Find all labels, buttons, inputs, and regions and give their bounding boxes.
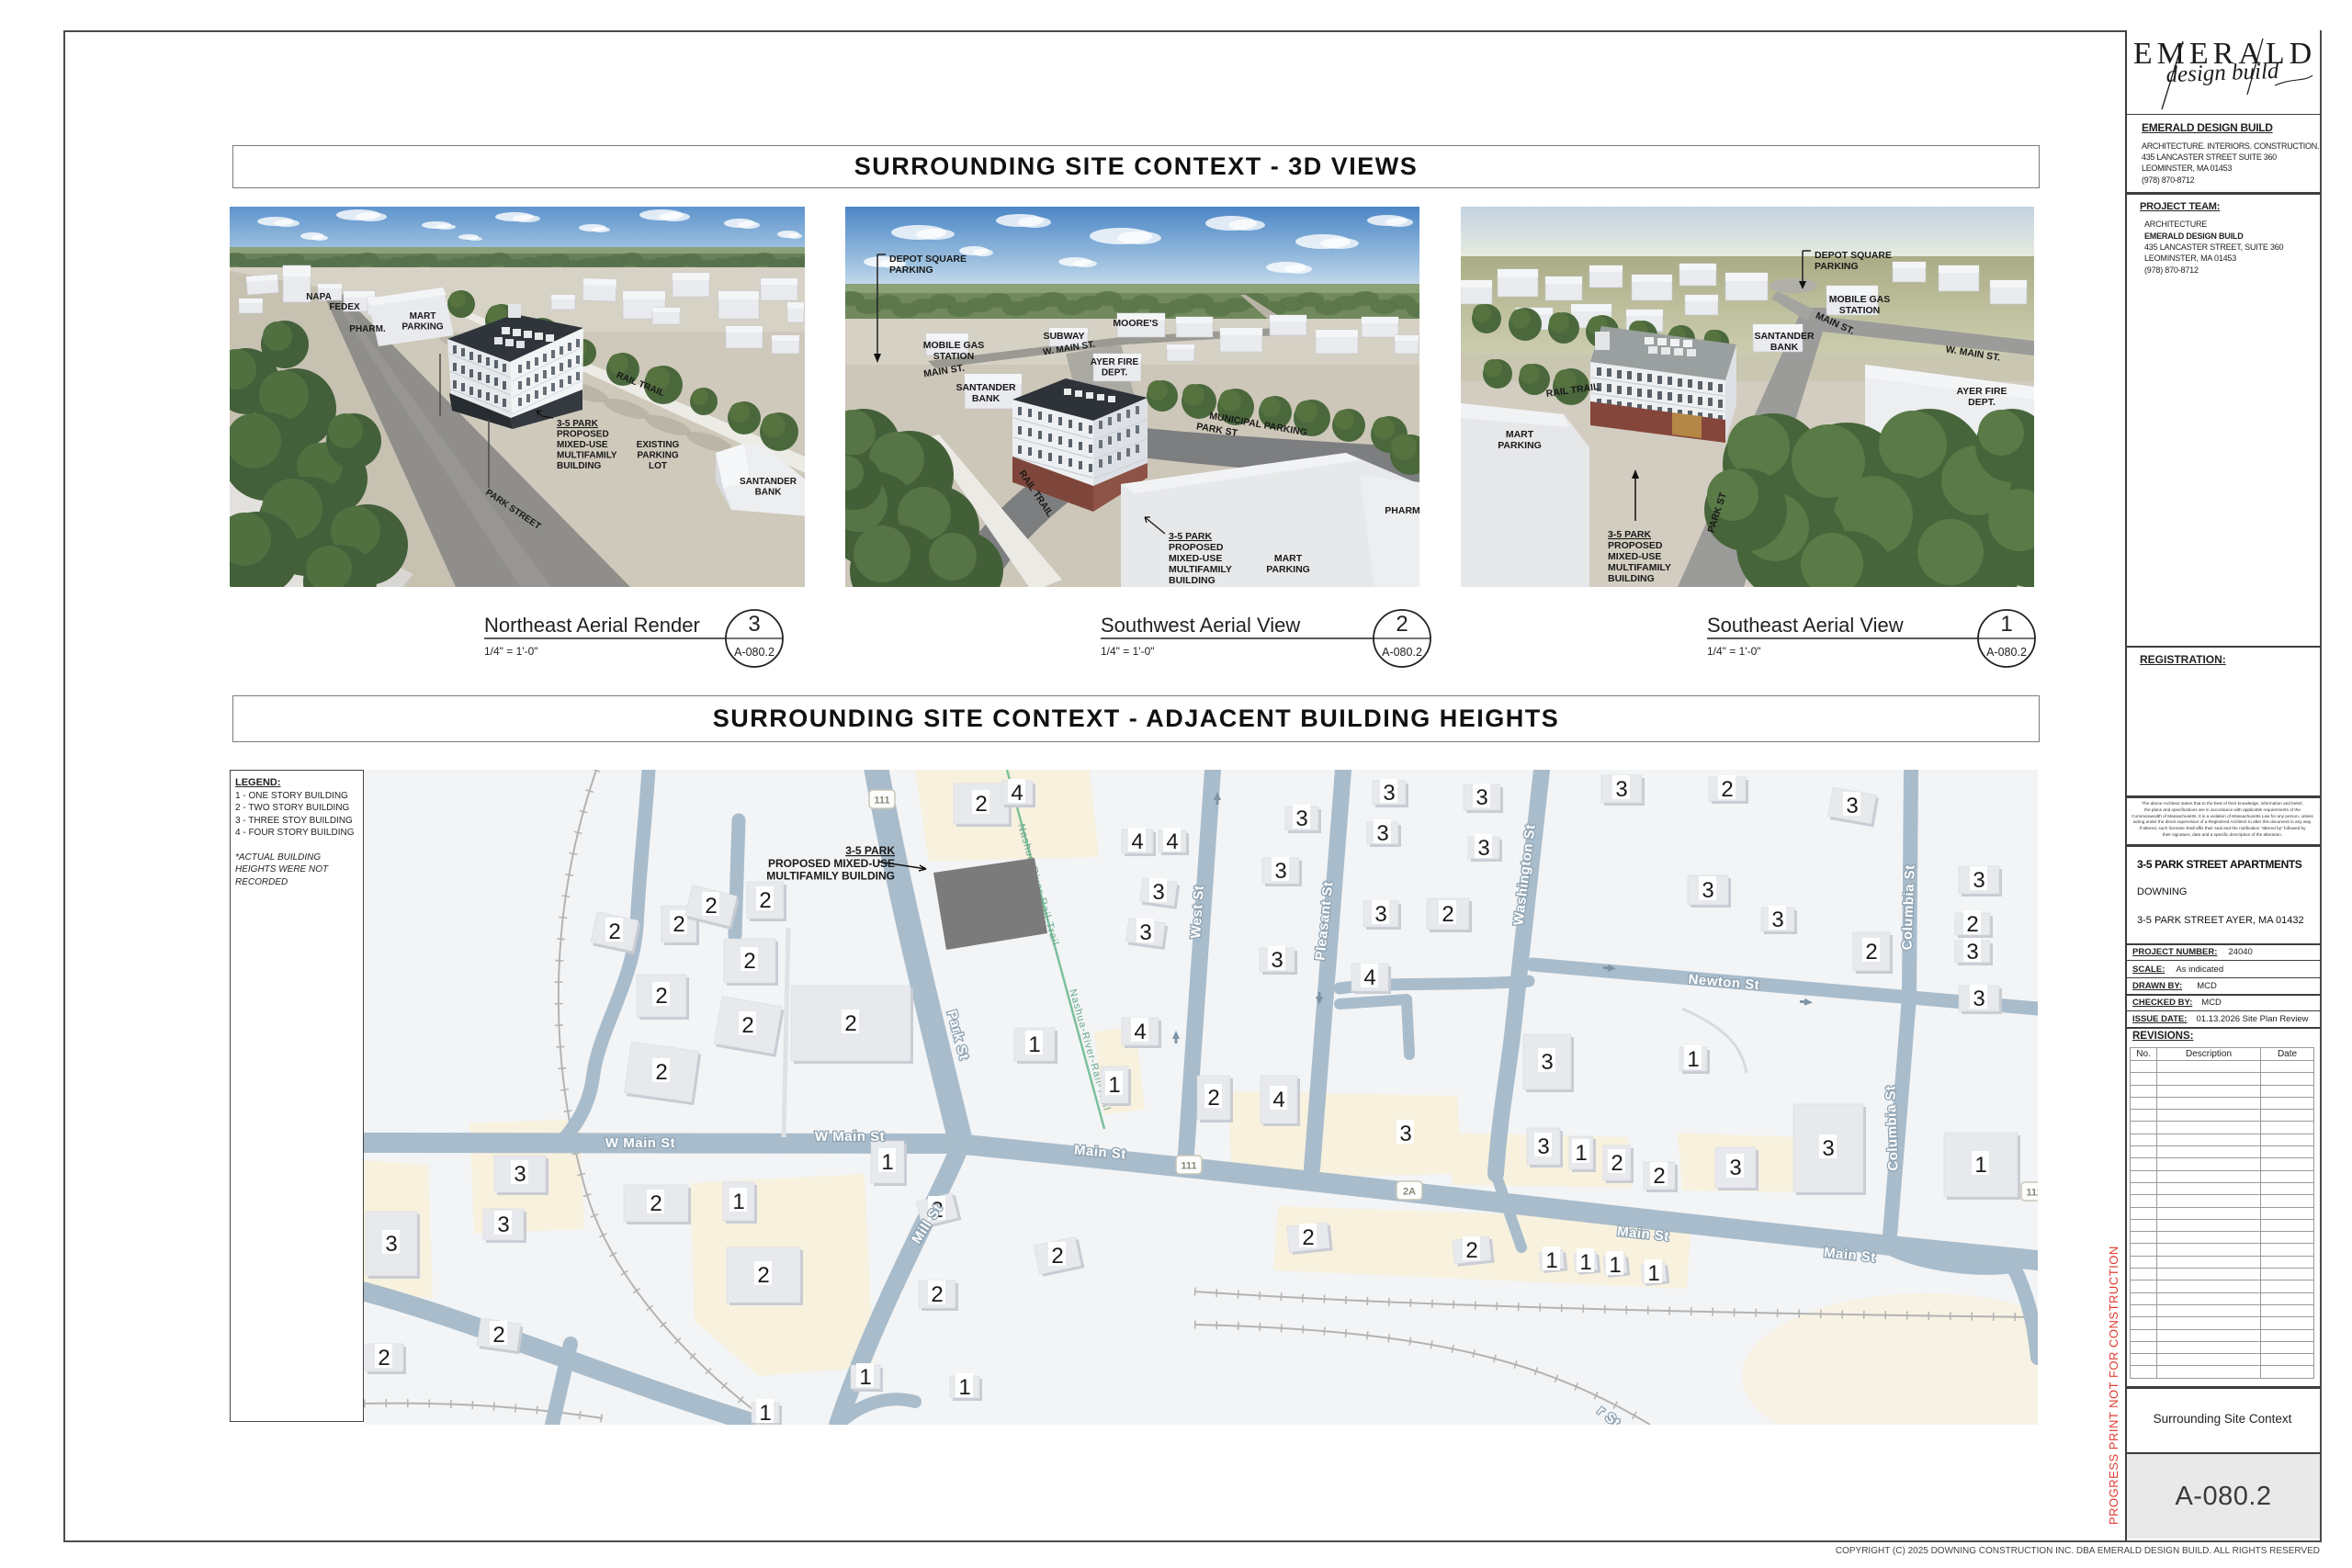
svg-text:3: 3 bbox=[1476, 785, 1487, 810]
svg-text:BUILDING: BUILDING bbox=[1608, 573, 1655, 584]
svg-text:2: 2 bbox=[1207, 1086, 1219, 1111]
svg-text:2: 2 bbox=[1302, 1225, 1314, 1250]
svg-text:PHARM.: PHARM. bbox=[349, 324, 386, 334]
svg-text:BANK: BANK bbox=[755, 488, 783, 498]
svg-text:SANTANDER: SANTANDER bbox=[1754, 331, 1815, 342]
svg-text:1: 1 bbox=[2000, 612, 2012, 637]
svg-text:4: 4 bbox=[1363, 965, 1375, 990]
svg-text:AYER FIRE: AYER FIRE bbox=[1091, 357, 1139, 367]
svg-text:1: 1 bbox=[1545, 1248, 1557, 1273]
svg-text:1: 1 bbox=[1647, 1261, 1659, 1286]
svg-text:PHARM.: PHARM. bbox=[1385, 505, 1419, 516]
svg-text:MULTIFAMILY: MULTIFAMILY bbox=[557, 451, 617, 461]
svg-text:2: 2 bbox=[608, 919, 620, 944]
svg-text:PARKING: PARKING bbox=[1498, 440, 1542, 451]
svg-text:AYER FIRE: AYER FIRE bbox=[1956, 386, 2007, 397]
svg-text:3: 3 bbox=[1702, 878, 1713, 903]
svg-text:PROPOSED: PROPOSED bbox=[1608, 540, 1663, 551]
svg-text:2: 2 bbox=[757, 1263, 769, 1288]
svg-text:2: 2 bbox=[1051, 1244, 1063, 1269]
svg-text:MULTIFAMILY BUILDING: MULTIFAMILY BUILDING bbox=[766, 870, 895, 883]
svg-text:1: 1 bbox=[1028, 1032, 1040, 1057]
svg-text:3: 3 bbox=[1966, 940, 1978, 964]
svg-text:3: 3 bbox=[1846, 794, 1858, 818]
svg-text:2: 2 bbox=[705, 894, 717, 919]
svg-text:PROPOSED MIXED-USE: PROPOSED MIXED-USE bbox=[768, 857, 895, 870]
svg-text:3: 3 bbox=[497, 1213, 509, 1237]
svg-text:MIXED-USE: MIXED-USE bbox=[557, 440, 608, 450]
svg-text:BUILDING: BUILDING bbox=[1169, 575, 1216, 586]
svg-text:MIXED-USE: MIXED-USE bbox=[1169, 553, 1222, 564]
svg-text:3: 3 bbox=[1477, 836, 1489, 861]
svg-text:PARKING: PARKING bbox=[401, 322, 444, 333]
svg-text:DEPOT SQUARE: DEPOT SQUARE bbox=[889, 254, 967, 265]
svg-text:STATION: STATION bbox=[1839, 305, 1881, 316]
svg-text:3: 3 bbox=[1139, 920, 1151, 945]
svg-text:2: 2 bbox=[1966, 912, 1978, 937]
svg-text:W Main St: W Main St bbox=[815, 1129, 885, 1145]
svg-text:3: 3 bbox=[1271, 948, 1283, 973]
svg-text:A-080.2: A-080.2 bbox=[734, 646, 775, 659]
svg-text:4: 4 bbox=[1272, 1088, 1284, 1112]
svg-text:1: 1 bbox=[958, 1375, 970, 1400]
svg-text:MOBILE GAS: MOBILE GAS bbox=[1829, 294, 1891, 305]
svg-text:A-080.2: A-080.2 bbox=[1986, 646, 2027, 659]
svg-text:SANTANDER: SANTANDER bbox=[740, 477, 797, 487]
svg-text:MIXED-USE: MIXED-USE bbox=[1608, 551, 1661, 562]
svg-text:2: 2 bbox=[741, 1013, 753, 1038]
svg-text:LOT: LOT bbox=[649, 461, 667, 471]
svg-text:PARKING: PARKING bbox=[1815, 261, 1859, 272]
svg-text:3: 3 bbox=[1822, 1136, 1834, 1161]
svg-text:1: 1 bbox=[859, 1365, 871, 1390]
svg-text:3: 3 bbox=[1374, 902, 1386, 927]
svg-text:3: 3 bbox=[1274, 859, 1286, 884]
svg-text:3-5 PARK: 3-5 PARK bbox=[557, 419, 599, 429]
svg-text:1: 1 bbox=[759, 1401, 771, 1425]
svg-text:3: 3 bbox=[1541, 1050, 1553, 1075]
svg-text:DEPT.: DEPT. bbox=[1968, 397, 1996, 408]
svg-text:FEDEX: FEDEX bbox=[329, 302, 360, 312]
svg-text:2: 2 bbox=[655, 984, 667, 1009]
svg-text:1: 1 bbox=[1575, 1141, 1587, 1166]
svg-text:2: 2 bbox=[759, 888, 771, 913]
svg-text:3-5 PARK: 3-5 PARK bbox=[845, 844, 895, 857]
svg-text:2A: 2A bbox=[1403, 1187, 1416, 1198]
svg-text:2: 2 bbox=[743, 949, 755, 974]
svg-text:EXISTING: EXISTING bbox=[637, 440, 680, 450]
svg-text:3-5 PARK: 3-5 PARK bbox=[1608, 529, 1651, 540]
svg-text:MART: MART bbox=[410, 311, 436, 321]
svg-text:MULTIFAMILY: MULTIFAMILY bbox=[1608, 562, 1671, 573]
svg-text:A-080.2: A-080.2 bbox=[1382, 646, 1422, 659]
svg-text:3: 3 bbox=[1771, 908, 1783, 932]
svg-text:1: 1 bbox=[1974, 1153, 1986, 1178]
svg-text:2: 2 bbox=[1721, 777, 1733, 802]
svg-text:3-5 PARK: 3-5 PARK bbox=[1169, 531, 1212, 542]
svg-text:2: 2 bbox=[492, 1323, 504, 1348]
svg-text:2: 2 bbox=[655, 1060, 667, 1085]
svg-text:MOORE'S: MOORE'S bbox=[1113, 318, 1158, 329]
svg-text:W Main St: W Main St bbox=[605, 1135, 675, 1151]
svg-text:SUBWAY: SUBWAY bbox=[1043, 331, 1084, 342]
svg-text:2: 2 bbox=[844, 1011, 856, 1036]
svg-text:3: 3 bbox=[514, 1162, 526, 1187]
svg-text:2: 2 bbox=[1442, 902, 1453, 927]
svg-text:MOBILE GAS: MOBILE GAS bbox=[923, 340, 985, 351]
svg-text:PARKING: PARKING bbox=[1266, 564, 1310, 575]
svg-text:2: 2 bbox=[1611, 1151, 1623, 1176]
svg-text:1: 1 bbox=[1108, 1073, 1120, 1098]
svg-text:4: 4 bbox=[1011, 781, 1023, 806]
svg-text:STATION: STATION bbox=[933, 351, 975, 362]
svg-text:2: 2 bbox=[1653, 1164, 1665, 1189]
svg-text:2: 2 bbox=[650, 1191, 661, 1216]
svg-text:1: 1 bbox=[1687, 1047, 1699, 1072]
svg-text:MULTIFAMILY: MULTIFAMILY bbox=[1169, 564, 1232, 575]
svg-text:2: 2 bbox=[1465, 1238, 1477, 1263]
svg-text:Columbia St: Columbia St bbox=[1899, 864, 1917, 951]
svg-text:1: 1 bbox=[732, 1190, 744, 1214]
svg-text:PROPOSED: PROPOSED bbox=[557, 430, 609, 440]
svg-text:4: 4 bbox=[1166, 829, 1178, 854]
svg-text:BANK: BANK bbox=[1770, 342, 1799, 353]
svg-text:PROPOSED: PROPOSED bbox=[1169, 542, 1224, 553]
svg-text:DEPT.: DEPT. bbox=[1102, 368, 1128, 378]
svg-text:2: 2 bbox=[931, 1282, 943, 1307]
svg-text:111: 111 bbox=[2026, 1188, 2038, 1199]
svg-text:2: 2 bbox=[673, 912, 684, 937]
svg-text:PARKING: PARKING bbox=[889, 265, 933, 276]
svg-text:Columbia St: Columbia St bbox=[1883, 1085, 1901, 1171]
svg-text:BANK: BANK bbox=[972, 393, 1001, 404]
svg-text:2: 2 bbox=[1865, 940, 1877, 964]
svg-text:3: 3 bbox=[748, 612, 760, 637]
svg-text:MART: MART bbox=[1506, 429, 1534, 440]
svg-text:3: 3 bbox=[1729, 1156, 1741, 1180]
svg-text:3: 3 bbox=[1537, 1134, 1549, 1159]
svg-text:1: 1 bbox=[881, 1150, 893, 1175]
svg-text:NAPA: NAPA bbox=[306, 292, 332, 302]
svg-text:3: 3 bbox=[1376, 821, 1388, 846]
svg-text:3: 3 bbox=[1152, 880, 1164, 905]
svg-text:3: 3 bbox=[1399, 1122, 1411, 1146]
svg-text:4: 4 bbox=[1134, 1020, 1146, 1044]
svg-text:BUILDING: BUILDING bbox=[557, 461, 602, 471]
svg-text:111: 111 bbox=[1181, 1161, 1196, 1172]
svg-text:3: 3 bbox=[385, 1232, 397, 1257]
svg-text:PARKING: PARKING bbox=[637, 451, 679, 461]
svg-text:2: 2 bbox=[975, 792, 987, 817]
svg-text:3: 3 bbox=[1973, 987, 1984, 1011]
svg-text:3: 3 bbox=[1295, 807, 1307, 831]
svg-text:4: 4 bbox=[1131, 829, 1143, 854]
svg-text:1: 1 bbox=[1609, 1253, 1621, 1278]
svg-text:1: 1 bbox=[1579, 1250, 1591, 1275]
svg-text:DEPOT SQUARE: DEPOT SQUARE bbox=[1815, 250, 1892, 261]
svg-text:3: 3 bbox=[1615, 777, 1627, 802]
svg-text:SANTANDER: SANTANDER bbox=[955, 382, 1016, 393]
svg-text:3: 3 bbox=[1383, 781, 1395, 806]
svg-text:MART: MART bbox=[1274, 553, 1303, 564]
svg-text:2: 2 bbox=[1396, 612, 1408, 637]
svg-text:2: 2 bbox=[378, 1346, 390, 1371]
svg-text:111: 111 bbox=[874, 795, 889, 807]
svg-text:3: 3 bbox=[1973, 868, 1984, 893]
